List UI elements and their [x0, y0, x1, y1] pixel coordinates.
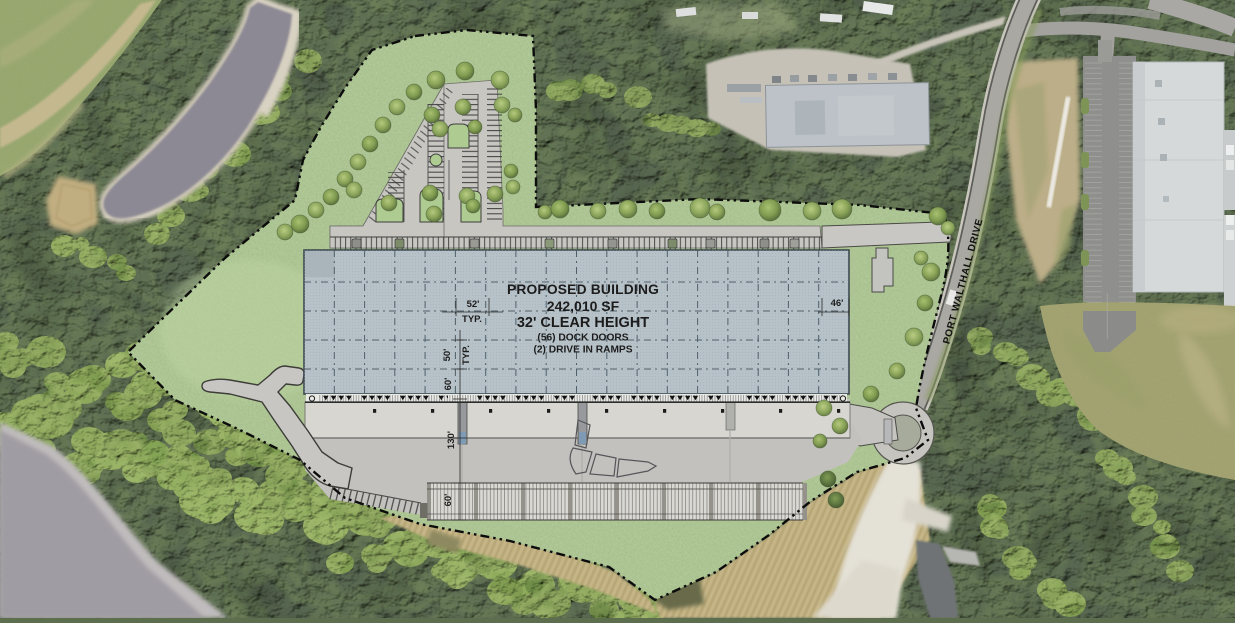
svg-text:TYP.: TYP.	[461, 345, 472, 365]
svg-text:32' CLEAR HEIGHT: 32' CLEAR HEIGHT	[517, 315, 649, 331]
svg-text:52': 52'	[467, 299, 480, 310]
svg-text:130': 130'	[446, 431, 457, 449]
svg-text:60': 60'	[443, 378, 454, 391]
svg-text:60': 60'	[443, 494, 454, 507]
svg-text:50': 50'	[442, 349, 453, 362]
svg-text:PROPOSED BUILDING: PROPOSED BUILDING	[507, 282, 659, 297]
svg-text:(2) DRIVE IN RAMPS: (2) DRIVE IN RAMPS	[533, 345, 632, 356]
svg-text:(56) DOCK DOORS: (56) DOCK DOORS	[537, 333, 628, 344]
svg-text:TYP.: TYP.	[462, 314, 482, 325]
svg-text:242,010 SF: 242,010 SF	[547, 298, 620, 314]
svg-text:46': 46'	[831, 298, 844, 309]
